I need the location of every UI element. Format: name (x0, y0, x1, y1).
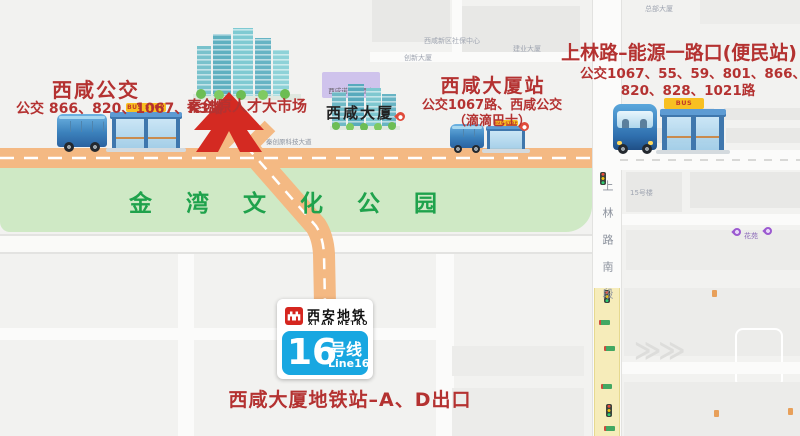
bus-stop-sign: BUS STOP (664, 98, 704, 109)
bus-icon-right (613, 104, 657, 154)
bus-wheel (642, 144, 652, 154)
bus-stop-marker (604, 346, 615, 351)
metro-name-en: XI'AN METRO (308, 320, 369, 327)
bus-wheel (64, 142, 74, 152)
bus-wheel (90, 142, 100, 152)
hydrant-marker (712, 290, 717, 297)
bus-wheel (472, 145, 480, 153)
traffic-light-icon (606, 404, 612, 417)
market-label: 秦创原人才大市场 (187, 95, 307, 116)
shelter-glass (489, 131, 523, 150)
bus-wheel (454, 145, 462, 153)
center-stop-routes2: （滴滴巴士） (406, 110, 578, 129)
bus-windows (60, 121, 104, 132)
bus-stop-marker (604, 426, 615, 431)
transit-map: ≫≫ 西咸新区社保中心 创新大厦 建业大厦 总部大厦 15号楼 花苑 (0, 0, 800, 436)
xixian-tower-label: 西咸大厦 (326, 102, 394, 123)
shelter-post (719, 117, 724, 154)
bus-windows (453, 129, 481, 137)
park-label: 金湾文化公园 (40, 184, 560, 218)
right-stop-title: 上林路–能源一路口(便民站) (558, 38, 800, 65)
shelter-post (691, 117, 696, 154)
bus-stop-marker (599, 320, 610, 325)
metro-station-card: 西安地铁 XI'AN METRO 16 号线 Line16 (277, 299, 373, 379)
passenger-silhouette (622, 119, 629, 128)
xian-metro-logo-icon (285, 307, 303, 325)
shelter-post (662, 117, 667, 154)
bus-windshield (617, 111, 653, 128)
diagonal-road (246, 146, 325, 304)
shelter-ground (482, 149, 530, 153)
shelter-roof (660, 109, 726, 117)
shelter-ground (656, 150, 730, 154)
metro-exit-label: 西咸大厦地铁站–A、D出口 (180, 385, 520, 412)
bus-shelter-right: BUS STOP (660, 98, 726, 154)
right-stop-routes2: 820、828、1021路 (580, 79, 796, 99)
line16-badge: 16 号线 Line16 (282, 331, 368, 375)
bus-icon-left (57, 114, 107, 152)
street-label-vertical: 上林路南段 (599, 180, 615, 315)
line-name-en: Line16 (328, 357, 369, 370)
bus-wheel (618, 144, 628, 154)
metro-logo-glyph (285, 307, 303, 325)
tech-avenue-label: 秦创原科技大道 (266, 136, 312, 146)
passenger-silhouette (640, 119, 647, 128)
left-stop-routes: 公交 866、820、1067、K3路 (16, 98, 196, 118)
shelter-ground (106, 148, 186, 152)
hydrant-marker (714, 410, 719, 417)
hydrant-marker (788, 408, 793, 415)
bus-stop-marker (601, 384, 612, 389)
